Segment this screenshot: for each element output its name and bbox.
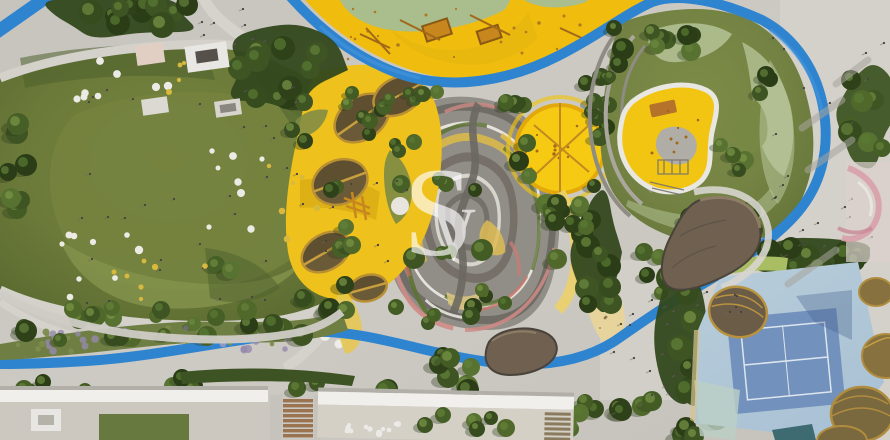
svg-text:V: V	[431, 193, 476, 277]
